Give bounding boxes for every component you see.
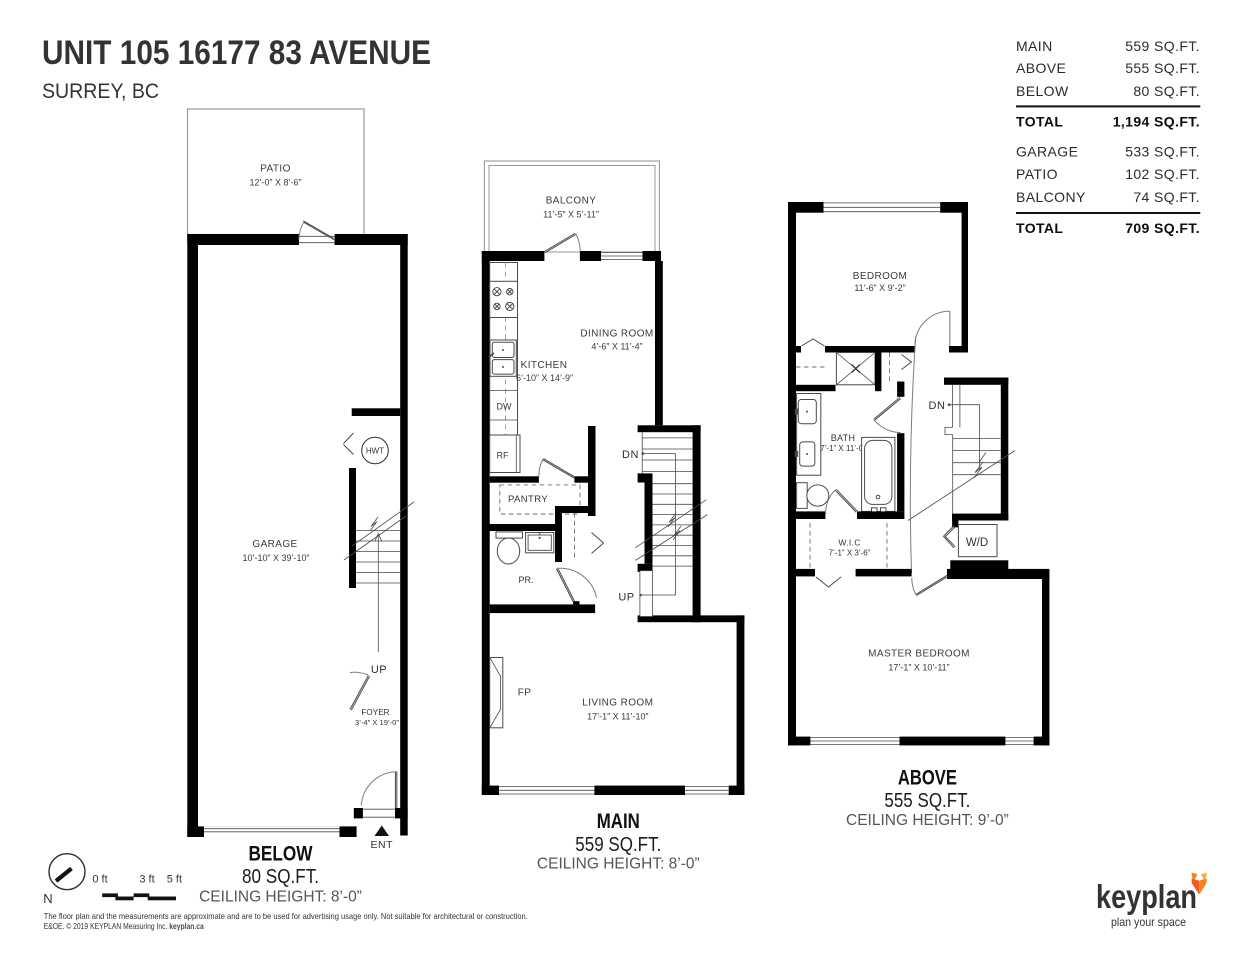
svg-text:LIVING ROOM: LIVING ROOM — [582, 698, 653, 709]
svg-text:559 SQ.FT.: 559 SQ.FT. — [575, 834, 661, 856]
svg-text:RF: RF — [497, 451, 509, 461]
svg-text:DN: DN — [929, 400, 946, 412]
svg-text:TOTAL: TOTAL — [1016, 220, 1063, 236]
svg-text:E&OE. © 2019 KEYPLAN Measuring: E&OE. © 2019 KEYPLAN Measuring Inc. keyp… — [44, 921, 204, 931]
svg-text:KITCHEN: KITCHEN — [521, 360, 568, 371]
svg-text:GARAGE: GARAGE — [1016, 144, 1078, 160]
svg-text:1,194 SQ.FT.: 1,194 SQ.FT. — [1113, 114, 1200, 130]
svg-text:5 ft: 5 ft — [167, 874, 182, 886]
svg-text:555 SQ.FT.: 555 SQ.FT. — [884, 790, 970, 812]
svg-text:12’-0” X 8’-6”: 12’-0” X 8’-6” — [249, 178, 301, 188]
svg-text:BELOW: BELOW — [249, 843, 313, 866]
svg-text:ABOVE: ABOVE — [1016, 60, 1066, 76]
svg-text:DINING ROOM: DINING ROOM — [580, 329, 653, 340]
svg-text:UP: UP — [618, 592, 634, 604]
svg-text:MAIN: MAIN — [597, 810, 640, 833]
svg-text:N: N — [43, 891, 52, 906]
svg-text:UNIT 105 16177 83 AVENUE: UNIT 105 16177 83 AVENUE — [42, 34, 431, 72]
svg-text:CEILING HEIGHT: 8’-0”: CEILING HEIGHT: 8’-0” — [199, 889, 362, 906]
svg-text:555 SQ.FT.: 555 SQ.FT. — [1125, 60, 1200, 76]
svg-text:PR.: PR. — [518, 575, 533, 585]
svg-text:CEILING HEIGHT: 9’-0”: CEILING HEIGHT: 9’-0” — [846, 812, 1009, 829]
svg-text:74 SQ.FT.: 74 SQ.FT. — [1133, 189, 1200, 205]
svg-text:3 ft: 3 ft — [139, 874, 154, 886]
svg-text:ENT: ENT — [371, 839, 394, 851]
svg-text:17’-1” X 11’-10”: 17’-1” X 11’-10” — [587, 712, 648, 722]
svg-text:FP: FP — [518, 688, 532, 699]
svg-text:3’-4” X 19’-0”: 3’-4” X 19’-0” — [355, 718, 399, 727]
svg-text:BATH: BATH — [831, 433, 856, 443]
svg-text:BEDROOM: BEDROOM — [853, 271, 907, 282]
svg-text:10’-10” X 39’-10”: 10’-10” X 39’-10” — [242, 553, 309, 563]
svg-text:HWT: HWT — [366, 447, 384, 456]
svg-text:FOYER: FOYER — [361, 708, 389, 717]
svg-text:BELOW: BELOW — [1016, 83, 1069, 99]
svg-text:keyplan: keyplan — [1096, 878, 1197, 915]
svg-text:PANTRY: PANTRY — [508, 494, 548, 505]
svg-text:17’-1” X 10’-11”: 17’-1” X 10’-11” — [888, 663, 949, 673]
svg-text:559 SQ.FT.: 559 SQ.FT. — [1125, 38, 1200, 54]
svg-text:DW: DW — [497, 402, 512, 412]
svg-text:BALCONY: BALCONY — [1016, 189, 1086, 205]
svg-text:W.I.C: W.I.C — [838, 538, 860, 548]
svg-text:11’-6” X 9’-2”: 11’-6” X 9’-2” — [854, 283, 905, 293]
svg-text:MASTER BEDROOM: MASTER BEDROOM — [868, 649, 970, 660]
svg-text:709 SQ.FT.: 709 SQ.FT. — [1125, 220, 1200, 236]
svg-text:0 ft: 0 ft — [92, 874, 107, 886]
svg-text:4’-6” X 11’-4”: 4’-6” X 11’-4” — [591, 342, 642, 352]
svg-text:DN: DN — [622, 449, 639, 461]
svg-text:CEILING HEIGHT: 8’-0”: CEILING HEIGHT: 8’-0” — [537, 856, 700, 873]
svg-text:W/D: W/D — [966, 537, 988, 549]
svg-text:UP: UP — [371, 664, 387, 676]
svg-text:533 SQ.FT.: 533 SQ.FT. — [1125, 144, 1200, 160]
svg-text:6’-10” X 14’-9”: 6’-10” X 14’-9” — [516, 373, 573, 383]
svg-text:PATIO: PATIO — [1016, 166, 1058, 182]
svg-text:7’-1” X 11’-0”: 7’-1” X 11’-0” — [820, 444, 866, 453]
svg-text:BALCONY: BALCONY — [546, 196, 597, 207]
svg-text:11’-5” X 5’-11”: 11’-5” X 5’-11” — [543, 210, 599, 220]
svg-text:102 SQ.FT.: 102 SQ.FT. — [1125, 166, 1200, 182]
svg-text:7’-1” X 3’-6”: 7’-1” X 3’-6” — [829, 549, 871, 558]
svg-text:GARAGE: GARAGE — [252, 539, 297, 550]
svg-text:80 SQ.FT.: 80 SQ.FT. — [1133, 83, 1200, 99]
svg-text:MAIN: MAIN — [1016, 38, 1053, 54]
svg-text:PATIO: PATIO — [260, 164, 291, 175]
svg-text:TOTAL: TOTAL — [1016, 114, 1063, 130]
svg-text:80 SQ.FT.: 80 SQ.FT. — [242, 866, 319, 888]
svg-text:ABOVE: ABOVE — [898, 767, 957, 790]
svg-text:SURREY, BC: SURREY, BC — [42, 79, 159, 103]
svg-text:plan your space: plan your space — [1111, 915, 1186, 929]
svg-text:The floor plan and the measure: The floor plan and the measurements are … — [44, 911, 528, 921]
